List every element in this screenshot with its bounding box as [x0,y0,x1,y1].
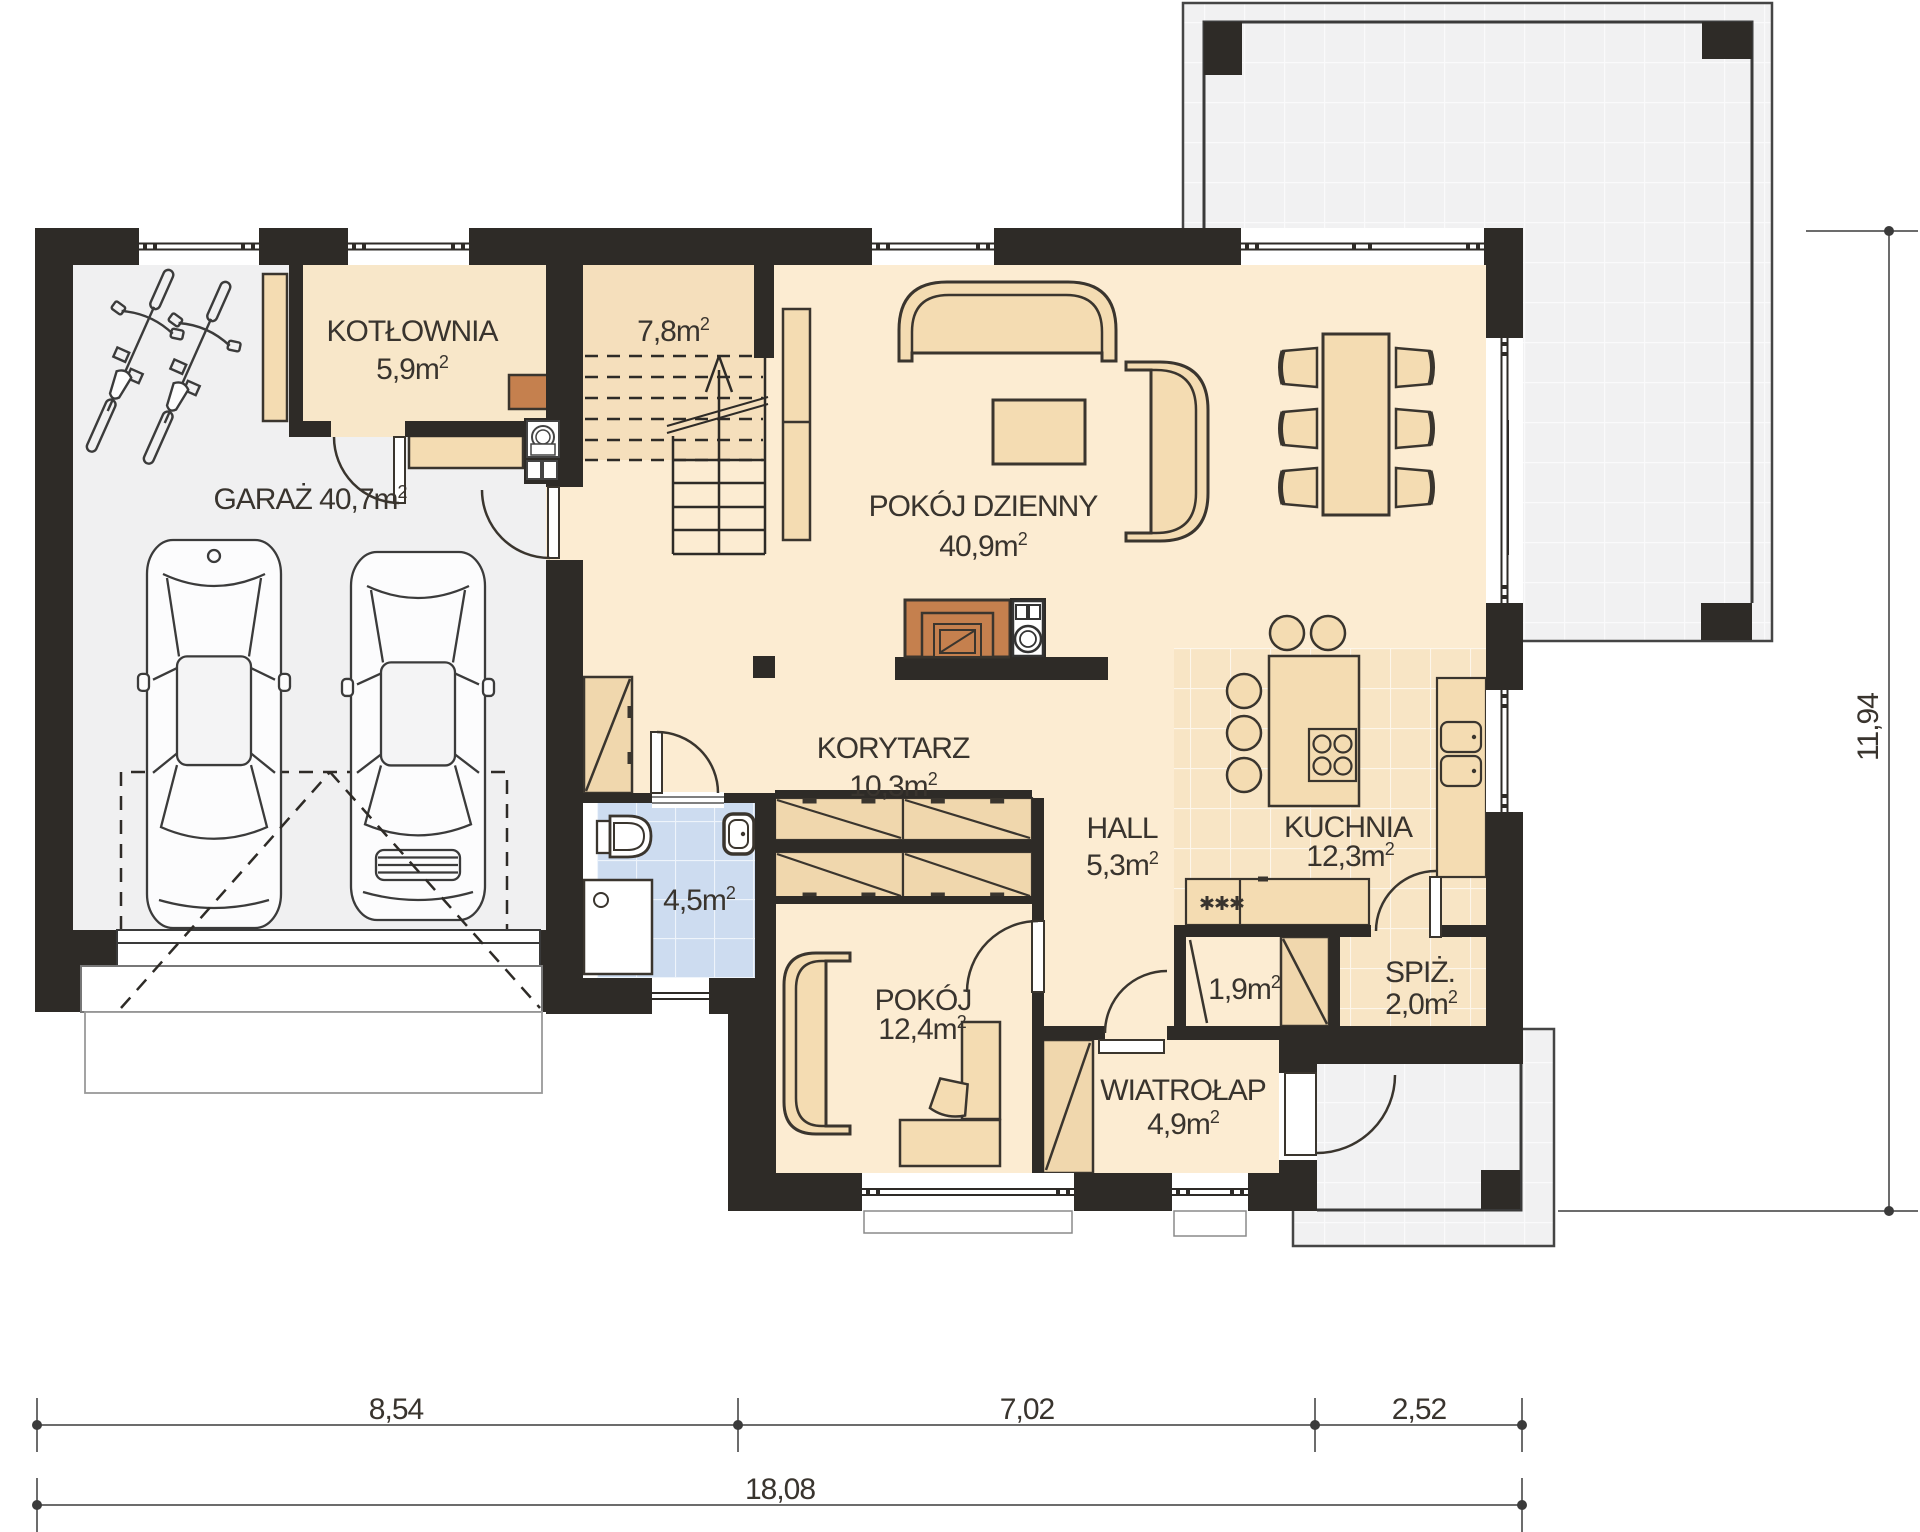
svg-text:SPIŻ.: SPIŻ. [1385,956,1455,989]
svg-text:4,5m2: 4,5m2 [663,883,736,917]
svg-text:1,9m2: 1,9m2 [1208,972,1281,1006]
svg-text:12,3m2: 12,3m2 [1306,839,1394,873]
svg-text:WIATROŁAP: WIATROŁAP [1100,1074,1265,1107]
svg-text:18,08: 18,08 [745,1473,815,1506]
svg-text:HALL: HALL [1086,812,1157,845]
svg-text:7,8m2: 7,8m2 [637,314,710,348]
svg-text:11,94: 11,94 [1852,693,1885,761]
svg-text:KORYTARZ: KORYTARZ [817,732,970,765]
svg-text:40,9m2: 40,9m2 [939,529,1027,563]
svg-text:POKÓJ DZIENNY: POKÓJ DZIENNY [869,490,1099,523]
svg-text:5,3m2: 5,3m2 [1086,848,1159,882]
svg-text:GARAŻ 40,7m2: GARAŻ 40,7m2 [213,482,407,516]
svg-text:2,52: 2,52 [1392,1393,1447,1426]
svg-text:KOTŁOWNIA: KOTŁOWNIA [326,315,498,348]
svg-text:12,4m2: 12,4m2 [878,1012,966,1046]
svg-text:7,02: 7,02 [1000,1393,1055,1426]
svg-text:2,0m2: 2,0m2 [1385,987,1458,1021]
svg-text:10,3m2: 10,3m2 [849,769,937,803]
svg-text:4,9m2: 4,9m2 [1147,1107,1220,1141]
svg-text:8,54: 8,54 [369,1393,424,1426]
svg-text:5,9m2: 5,9m2 [376,352,449,386]
